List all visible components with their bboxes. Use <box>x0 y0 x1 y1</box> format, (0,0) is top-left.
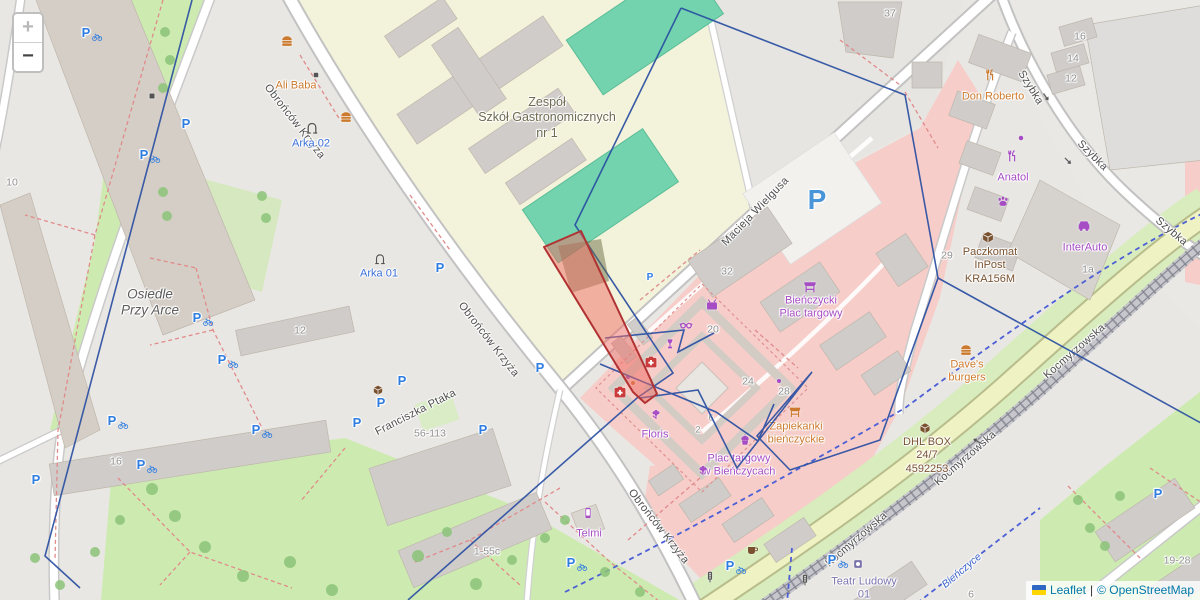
map-viewport[interactable]: Obrońców KrzyżaObrońców KrzyżaObrońców K… <box>0 0 1200 600</box>
base-map <box>0 0 1200 600</box>
ukraine-flag-icon <box>1032 585 1046 595</box>
zoom-out-button[interactable]: − <box>14 43 42 71</box>
zoom-in-button[interactable]: + <box>14 14 42 43</box>
attribution-separator: | <box>1090 583 1093 597</box>
attribution-bar: Leaflet | © OpenStreetMap <box>1026 581 1200 600</box>
zoom-control: + − <box>12 12 44 73</box>
leaflet-link[interactable]: Leaflet <box>1050 583 1086 597</box>
openstreetmap-link[interactable]: © OpenStreetMap <box>1097 583 1194 597</box>
